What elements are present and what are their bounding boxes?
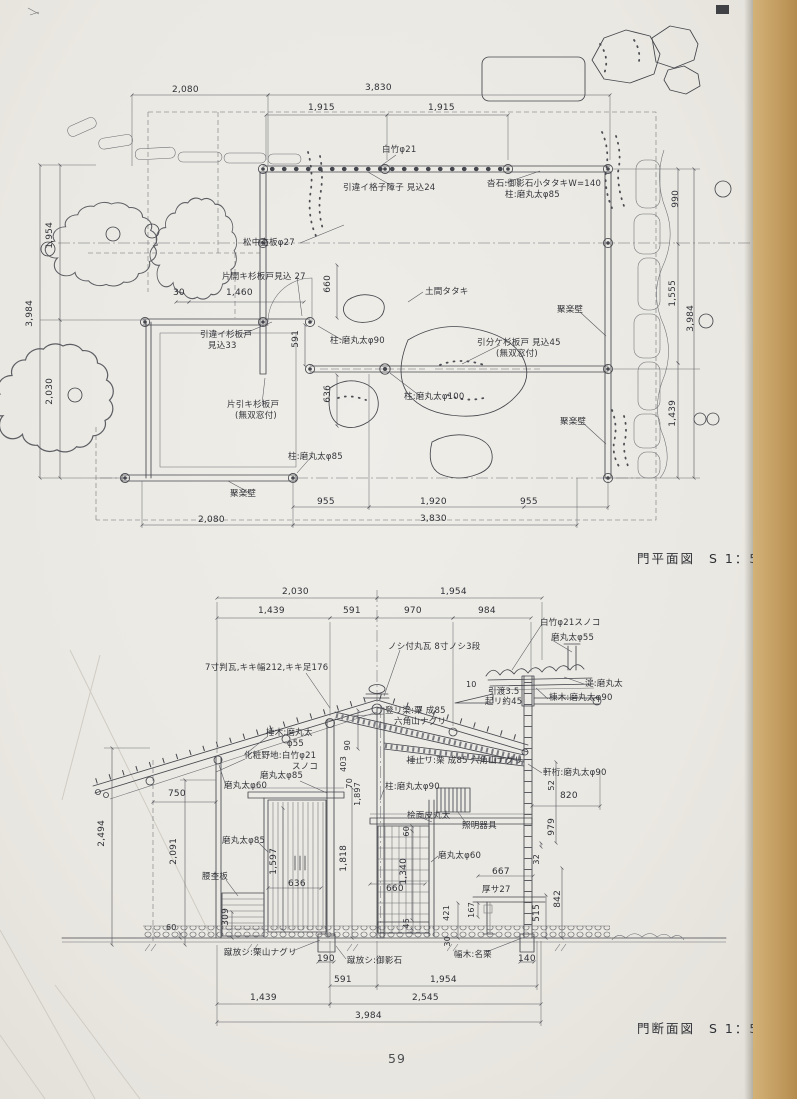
dim-label: 10 — [466, 681, 477, 690]
garden-rocks — [482, 26, 700, 101]
plan-caption-title: 門平面図 — [637, 548, 695, 567]
dim-label: 2,545 — [412, 994, 439, 1004]
dim-label: 403 — [340, 756, 349, 772]
annotation-label: 柱:磨丸太φ90 — [385, 783, 440, 792]
dim-label: 2,080 — [198, 516, 225, 526]
gravel — [308, 152, 324, 236]
annotation-label: 7寸判瓦,キキ幅212,キキ足176 — [205, 664, 328, 673]
dim-label: 30 — [444, 936, 453, 947]
dim-label: 591 — [343, 607, 361, 617]
annotation-label: 柱:磨丸太φ90 — [330, 337, 385, 346]
dim-label: 45 — [403, 918, 412, 929]
annotation-label: 松中杢板φ27 — [243, 239, 295, 248]
annotation-label: 磨丸太φ85 — [222, 837, 265, 846]
dim-label: 3,830 — [420, 515, 447, 525]
dim-label: 1,954 — [440, 588, 467, 598]
dim-label: 1,340 — [400, 858, 410, 885]
dim-label: 421 — [443, 905, 452, 921]
annotation-label: 磨丸太φ55 — [551, 634, 594, 643]
dim-label: 30 — [173, 289, 185, 299]
dim-label: 32 — [533, 854, 542, 865]
dim-label: 3,984 — [687, 305, 697, 332]
annotation-label: 聚楽壁 — [557, 306, 583, 315]
annotation-label: 引違イ杉板戸 — [200, 331, 252, 340]
dim-label: 1,460 — [226, 289, 253, 299]
dim-label: 52 — [548, 780, 557, 791]
dim-label: 1,555 — [669, 280, 679, 307]
lighting-fixture — [437, 788, 470, 812]
annotation-label: 腰杢板 — [202, 873, 228, 882]
section-caption-title: 門断面図 — [637, 1018, 695, 1037]
annotation-label: 柱:磨丸太φ85 — [288, 453, 343, 462]
scanned-book-page: 2,080 3,830 1,915 1,915 990 1,555 3,984 … — [0, 0, 797, 1099]
dim-label: 1,897 — [354, 782, 363, 806]
dim-label: 1,920 — [420, 498, 447, 508]
ground — [62, 926, 726, 952]
annotation-label: 化粧野地:白竹φ21 — [244, 752, 316, 761]
dim-label: 309 — [222, 908, 232, 926]
dim-label: 667 — [492, 868, 510, 878]
annotation-label: 桧面皮丸太 — [407, 812, 451, 821]
annotation-label: (無双窓付) — [496, 350, 538, 359]
dim-label: 3,984 — [26, 300, 36, 327]
annotation-label: φ55 — [287, 740, 304, 749]
dim-label: 2,091 — [170, 838, 180, 865]
dim-label: 190 — [317, 955, 335, 965]
annotation-label: 片引キ杉板戸 — [227, 401, 279, 410]
dim-label: 970 — [404, 607, 422, 617]
dim-label: 60 — [403, 826, 412, 837]
annotation-label: 柱:磨丸太φ85 — [505, 191, 560, 200]
dim-label: 515 — [533, 904, 543, 922]
annotation-label: 照明器具 — [462, 822, 497, 831]
plan-posts — [120, 164, 612, 482]
page-number: 59 — [388, 1051, 406, 1066]
dim-label: 820 — [560, 792, 578, 802]
dim-label: 636 — [324, 385, 334, 403]
annotation-label: 引渡3.5 — [488, 688, 520, 697]
annotation-label: 白竹φ21スノコ — [540, 619, 601, 628]
plan-walls — [122, 166, 611, 481]
plan-dimensions — [40, 95, 700, 528]
annotation-label: 引違イ格子障子 見込24 — [343, 184, 435, 193]
annotation-label: 蹴放シ:栗山ナグリ — [224, 949, 297, 958]
stone-wall — [634, 150, 670, 478]
dim-label: 1,439 — [258, 607, 285, 617]
dim-label: 60 — [166, 924, 177, 933]
dim-label: 1,818 — [340, 845, 350, 872]
roof — [93, 685, 528, 800]
annotation-label: 淀:磨丸太 — [585, 680, 623, 689]
dim-label: 2,030 — [46, 378, 56, 405]
dim-label: 2,030 — [282, 588, 309, 598]
annotation-label: 起リ約45 — [485, 698, 522, 707]
annotation-label: 引分ケ杉板戸 見込45 — [477, 339, 561, 348]
annotation-label: 片開キ杉板戸見込 27 — [222, 273, 306, 282]
dim-label: 591 — [334, 976, 352, 986]
dim-label: 1,439 — [250, 994, 277, 1004]
dim-label: 955 — [317, 498, 335, 508]
dim-label: 842 — [554, 890, 564, 908]
annotation-label: 見込33 — [208, 342, 237, 351]
annotation-label: 厚サ27 — [482, 886, 511, 895]
annotation-label: 聚楽壁 — [230, 490, 256, 499]
dim-label: 1,915 — [428, 104, 455, 114]
annotation-label: 棟木:磨丸太φ90 — [549, 694, 613, 703]
dim-label: 660 — [386, 885, 404, 895]
annotation-label: 白竹φ21 — [382, 146, 416, 155]
dim-label: 2,494 — [98, 820, 108, 847]
dim-label: 1,915 — [308, 104, 335, 114]
annotation-label: 土間タタキ — [425, 288, 469, 297]
plan-leaders — [228, 155, 606, 493]
dim-label: 990 — [672, 190, 682, 208]
dim-label: 1,954 — [430, 976, 457, 986]
dim-label: 979 — [548, 818, 558, 836]
annotation-label: 登リ梁:栗 成85 — [385, 707, 446, 716]
dim-label: 1,439 — [669, 400, 679, 427]
dim-label: 591 — [292, 330, 302, 348]
dim-label: 1,597 — [270, 848, 280, 875]
annotation-label: (無双窓付) — [235, 412, 277, 421]
dim-label: 1,954 — [46, 222, 56, 249]
dim-label: 90 — [344, 740, 353, 751]
annotation-label: 六角山ナグリ — [394, 718, 446, 727]
annotation-label: 軒桁:磨丸太φ90 — [543, 769, 607, 778]
dim-label: 3,830 — [365, 84, 392, 94]
dim-label: 955 — [520, 498, 538, 508]
annotation-label: 柱:磨丸太φ100 — [404, 393, 465, 402]
dim-label: 984 — [478, 607, 496, 617]
annotation-label: 幅木:名栗 — [454, 951, 492, 960]
dim-label: 636 — [288, 880, 306, 890]
plan-drawing — [0, 26, 768, 528]
dim-label: 2,080 — [172, 86, 199, 96]
dim-label: 750 — [168, 790, 186, 800]
annotation-label: ノシ付丸瓦 8寸ノシ3段 — [388, 643, 480, 652]
annotation-label: 沓石:御影石小タタキW=140 — [487, 180, 601, 189]
dim-label: 3,984 — [355, 1012, 382, 1022]
annotation-label: 磨丸太φ60 — [224, 782, 267, 791]
annotation-label: 蹴放シ:御影石 — [347, 957, 402, 966]
dim-label: 140 — [518, 955, 536, 965]
stepping-stones — [329, 295, 527, 478]
page-edge-shadow — [744, 0, 753, 1099]
book-binding-edge — [753, 0, 797, 1099]
annotation-label: 磨丸太φ60 — [438, 852, 481, 861]
dim-label: 660 — [324, 275, 334, 293]
dim-label: 167 — [468, 902, 477, 918]
annotation-label: 棰木:磨丸太 — [266, 729, 313, 738]
annotation-label: 磨丸太φ85 — [260, 772, 303, 781]
annotation-label: 棰止リ:栗 成85 六角山ナグリ — [407, 757, 523, 766]
annotation-label: 聚楽壁 — [560, 418, 586, 427]
